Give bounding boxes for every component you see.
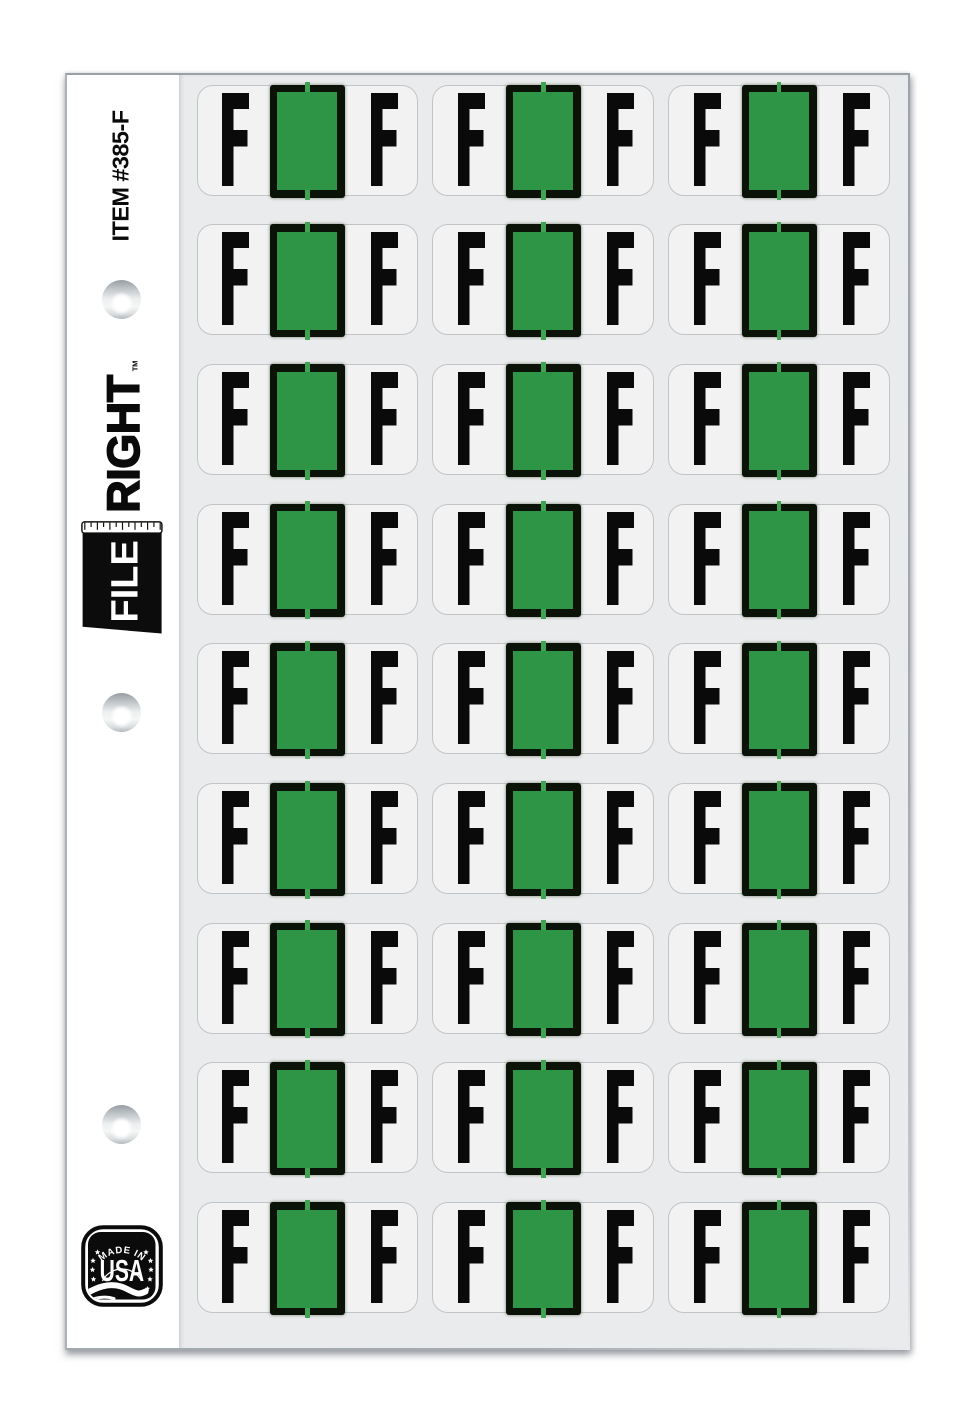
svg-text:FILE: FILE bbox=[105, 540, 147, 622]
svg-text:USA: USA bbox=[100, 1253, 145, 1288]
